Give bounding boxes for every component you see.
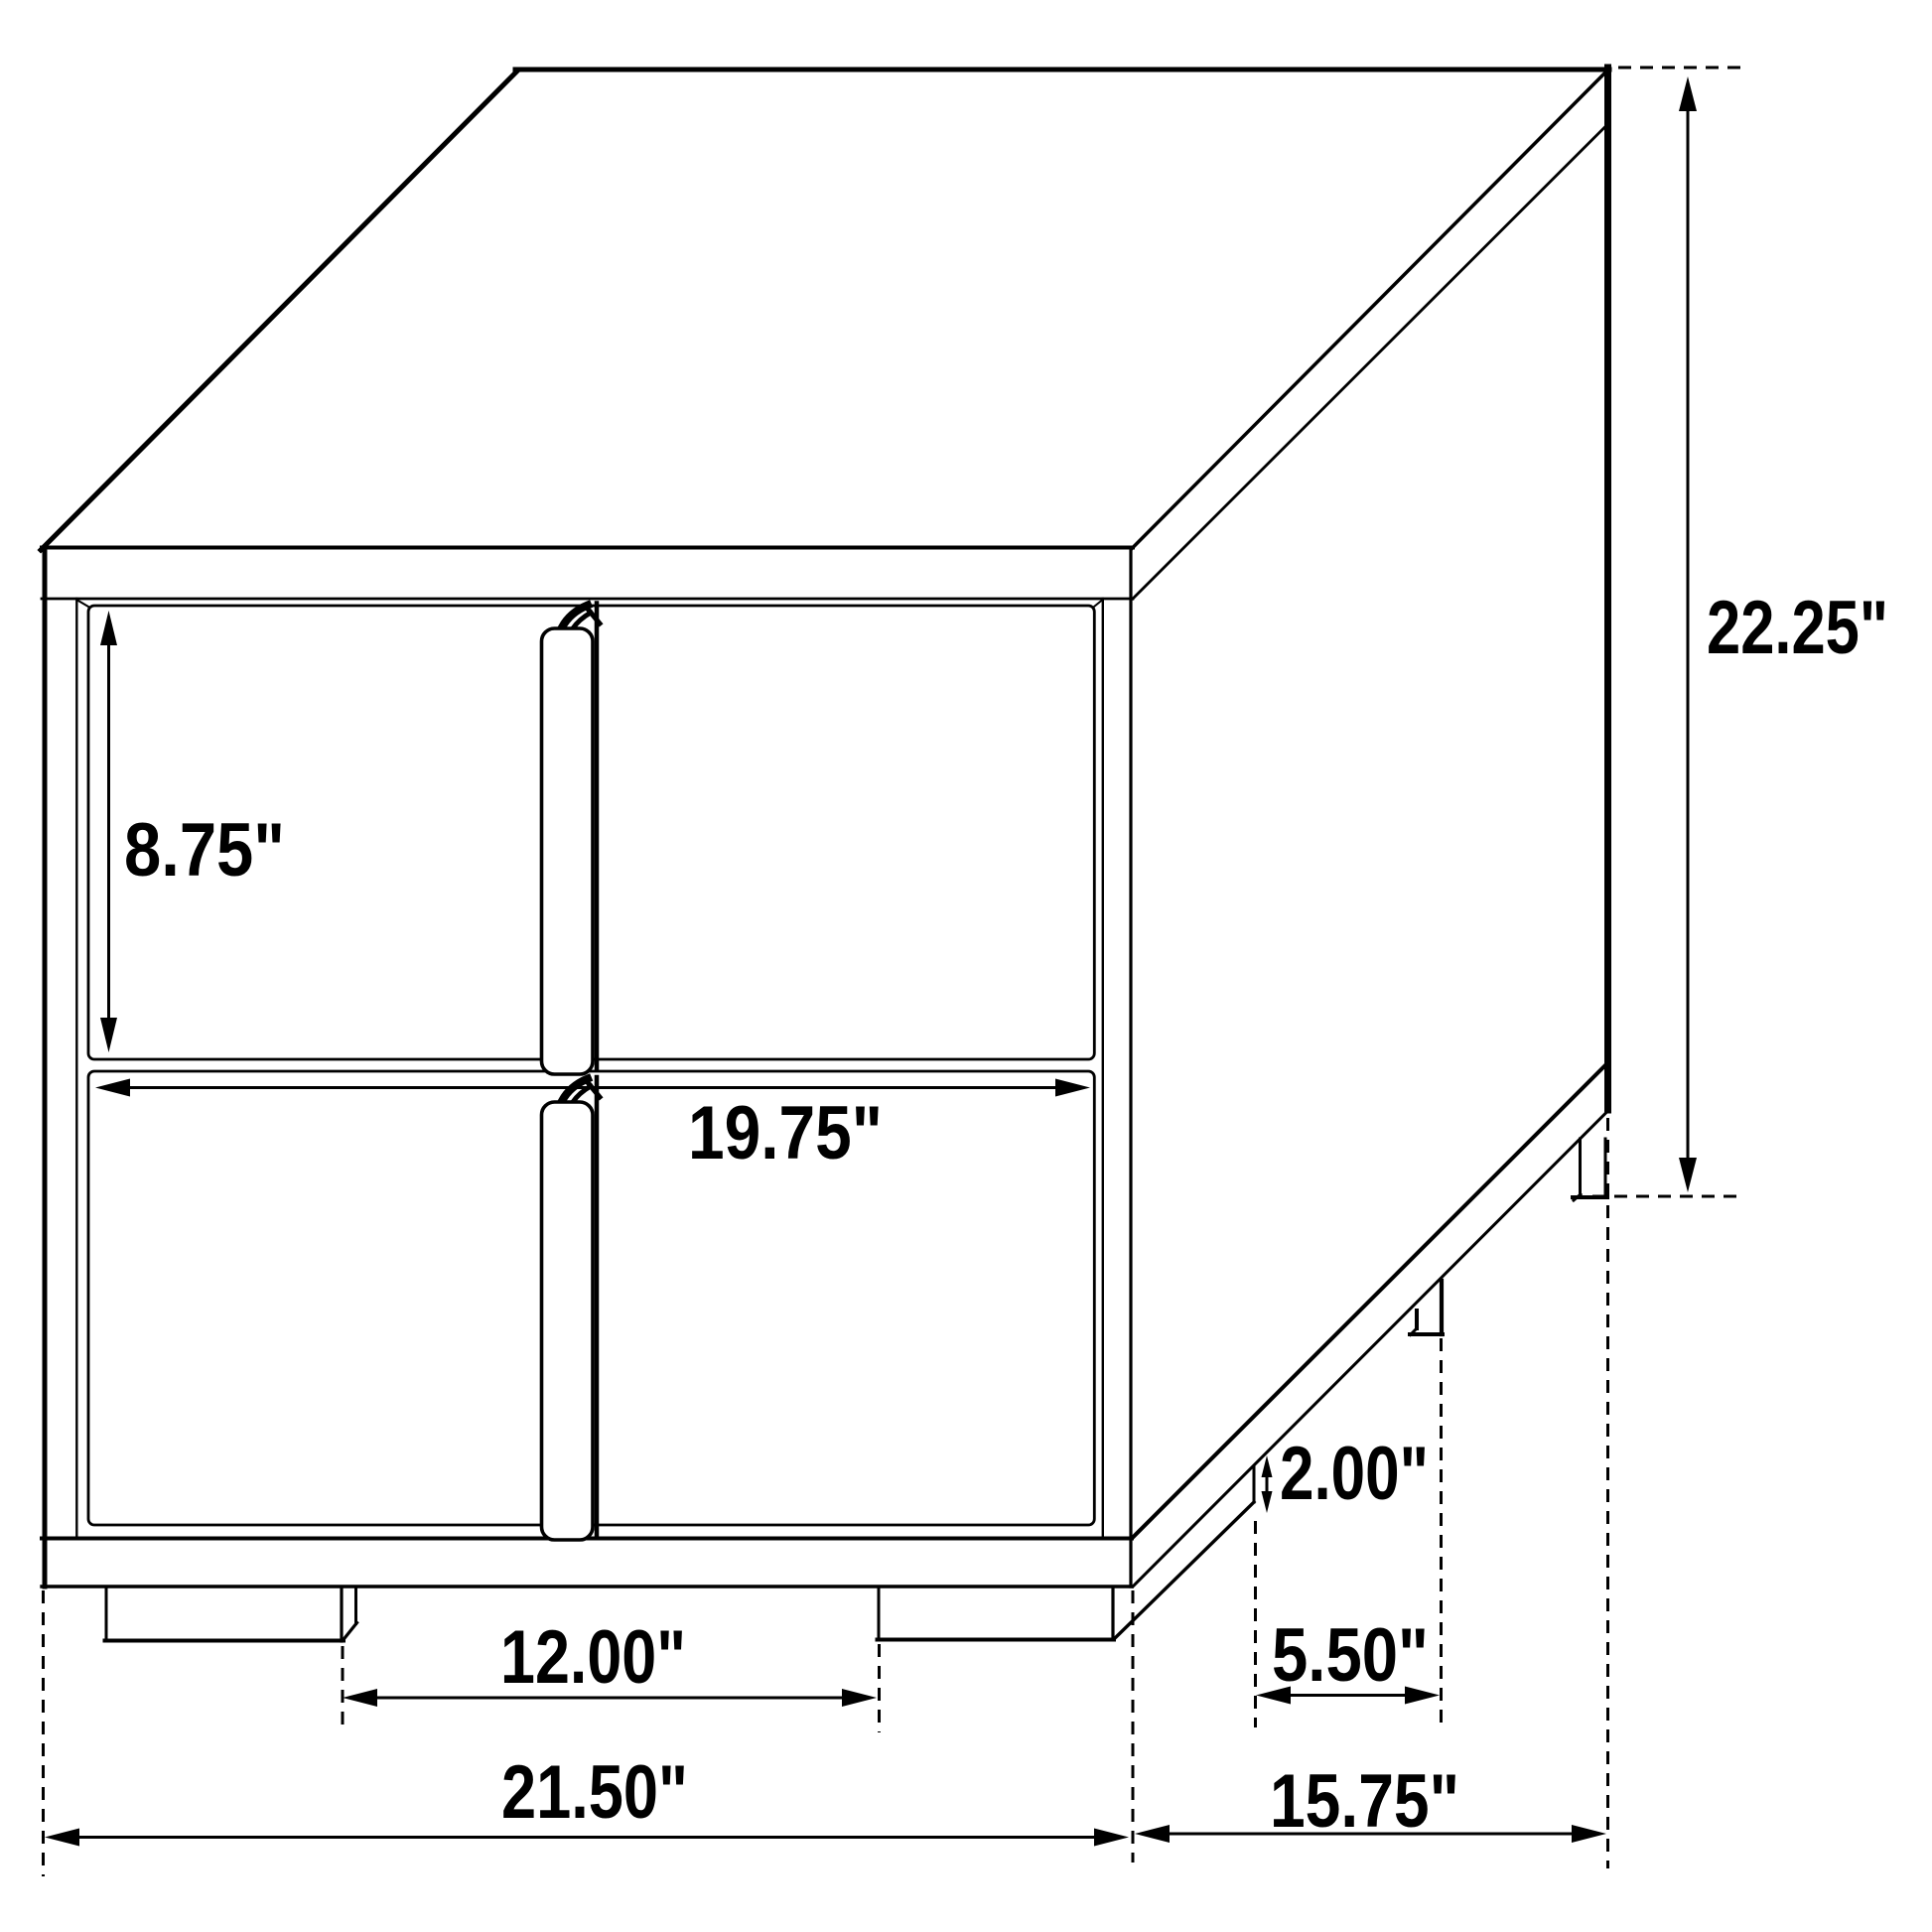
svg-text:12.00": 12.00"	[500, 1615, 686, 1700]
svg-text:8.75": 8.75"	[124, 808, 285, 893]
svg-text:2.00": 2.00"	[1280, 1432, 1429, 1516]
svg-text:21.50": 21.50"	[501, 1750, 688, 1835]
svg-text:15.75": 15.75"	[1270, 1759, 1459, 1844]
svg-text:19.75": 19.75"	[688, 1091, 883, 1175]
svg-text:22.25": 22.25"	[1707, 586, 1888, 670]
svg-text:5.50": 5.50"	[1272, 1613, 1429, 1698]
